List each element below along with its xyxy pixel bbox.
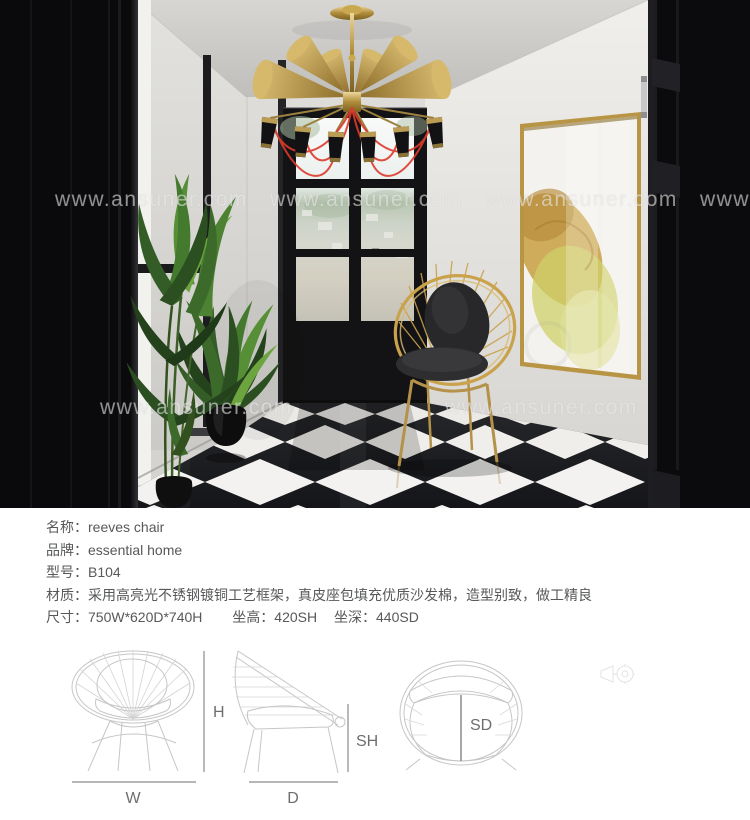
spec-material: 材质：采用高亮光不锈钢镀铜工艺框架，真皮座包填充优质沙发棉，造型别致，做工精良 — [46, 588, 750, 603]
spec-seat-height: 坐高：420SH — [232, 609, 317, 625]
seat-depth-label: SD — [470, 717, 492, 734]
product-specs: 名称：reeves chair 品牌：essential home 型号：B10… — [0, 508, 750, 625]
spec-seat-depth: 坐深：440SD — [334, 609, 419, 625]
projection-view-icon — [601, 664, 635, 684]
interior-photo — [0, 0, 750, 508]
seat-height-label: SH — [356, 733, 378, 750]
product-page: www.ansuner.com www.ansuner.com www.ansu… — [0, 0, 750, 820]
spec-name: 名称：reeves chair — [46, 520, 750, 535]
artwork — [500, 110, 641, 380]
top-view-drawing: SD — [400, 661, 522, 770]
spec-model: 型号：B104 — [46, 565, 750, 580]
front-view-drawing: W H — [72, 650, 225, 807]
left-black-wall — [0, 0, 138, 508]
spec-dimensions: 尺寸：750W*620D*740H 坐高：420SH 坐深：440SD — [46, 610, 750, 625]
depth-label: D — [287, 790, 299, 807]
side-view-drawing: D SH — [232, 651, 378, 807]
spec-brand: 品牌：essential home — [46, 543, 750, 558]
height-label: H — [213, 704, 225, 721]
spec-size: 尺寸：750W*620D*740H — [46, 609, 202, 625]
door-hinge — [641, 76, 647, 118]
product-photo: www.ansuner.com www.ansuner.com www.ansu… — [0, 0, 750, 508]
dimension-diagrams: W H D — [0, 633, 750, 820]
dimension-drawings: W H D — [0, 633, 750, 815]
right-wall — [641, 0, 750, 508]
width-label: W — [125, 790, 141, 807]
